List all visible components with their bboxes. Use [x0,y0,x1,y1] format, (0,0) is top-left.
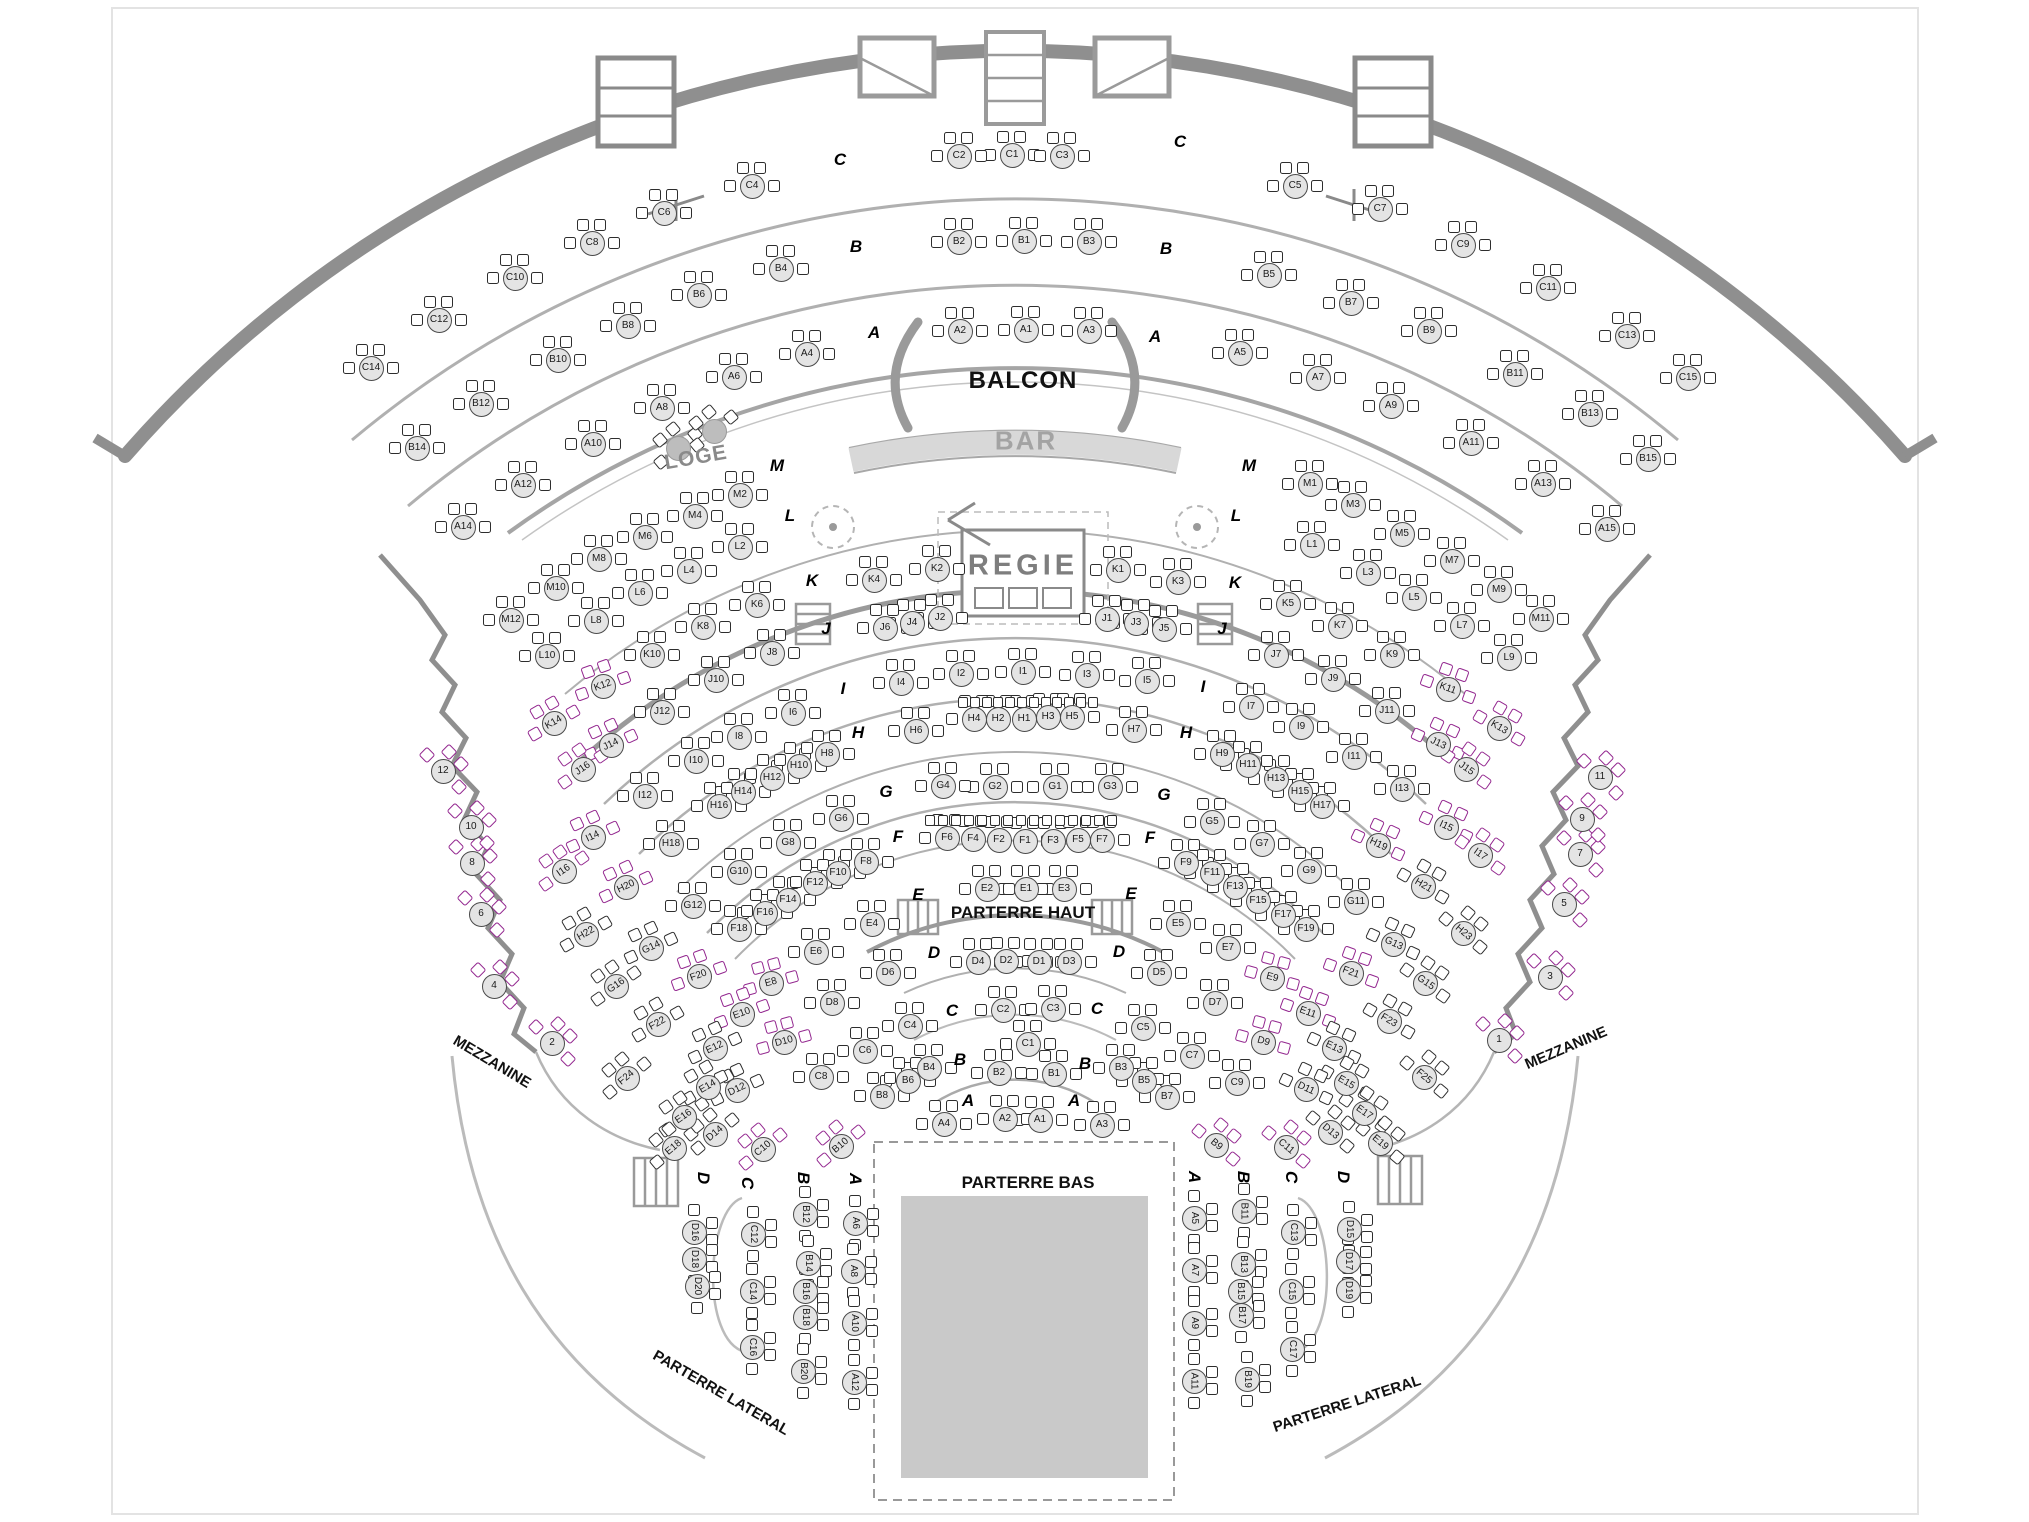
table-row-b-B6[interactable]: B6 [896,1069,921,1094]
table-row-j-J4[interactable]: J4 [900,611,925,636]
table-row-f-F11[interactable]: F11 [1200,861,1225,886]
table-row-a-A7[interactable]: A7 [1182,1258,1207,1283]
table-row-j-J16[interactable]: J16 [571,757,596,782]
table-row-h-H23[interactable]: H23 [1451,921,1476,946]
table-row-b-B14[interactable]: B14 [796,1251,821,1276]
table-row-g-G7[interactable]: G7 [1250,832,1275,857]
table-row-e-E11[interactable]: E11 [1296,1001,1321,1026]
table-mezz-left-10[interactable]: 10 [459,815,484,840]
table-row-i-I7[interactable]: I7 [1239,695,1264,720]
table-row-f-F19[interactable]: F19 [1294,917,1319,942]
table-mezz-left-12[interactable]: 12 [431,759,456,784]
table-row-i-I3[interactable]: I3 [1075,663,1100,688]
table-row-a-A10[interactable]: A10 [842,1311,867,1336]
table-row-d-D8[interactable]: D8 [820,991,845,1016]
table-row-k-K3[interactable]: K3 [1166,570,1191,595]
table-row-c-C6[interactable]: C6 [853,1039,878,1064]
table-row-h-H3[interactable]: H3 [1036,705,1061,730]
table-row-f-F10[interactable]: F10 [826,861,851,886]
table-balcon-c-C2[interactable]: C2 [947,144,972,169]
table-balcon-a-A10[interactable]: A10 [581,432,606,457]
table-balcon-b-B4[interactable]: B4 [769,257,794,282]
table-row-i-I15[interactable]: I15 [1434,815,1459,840]
table-row-l-L9[interactable]: L9 [1497,646,1522,671]
table-row-i-I12[interactable]: I12 [633,784,658,809]
table-row-f-F5[interactable]: F5 [1066,828,1091,853]
table-balcon-c-C15[interactable]: C15 [1676,366,1701,391]
table-row-b-B11[interactable]: B11 [1232,1199,1257,1224]
table-row-d-D6[interactable]: D6 [876,961,901,986]
table-row-b-B9[interactable]: B9 [1204,1133,1229,1158]
table-row-m-M10[interactable]: M10 [544,576,569,601]
table-row-d-D14[interactable]: D14 [703,1122,728,1147]
table-row-e-E18[interactable]: E18 [662,1136,687,1161]
table-row-b-B3[interactable]: B3 [1109,1056,1134,1081]
table-row-c-C4[interactable]: C4 [898,1014,923,1039]
chair [750,889,762,901]
table-row-b-B17[interactable]: B17 [1229,1303,1254,1328]
table-row-g-G8[interactable]: G8 [776,831,801,856]
table-row-k-K4[interactable]: K4 [862,568,887,593]
table-balcon-b-B14[interactable]: B14 [405,436,430,461]
chair [1336,279,1348,291]
door-pivot-left [829,523,837,531]
table-balcon-a-A5[interactable]: A5 [1228,341,1253,366]
table-row-a-A3[interactable]: A3 [1090,1113,1115,1138]
table-row-d-D15[interactable]: D15 [1337,1217,1362,1242]
table-row-h-H20[interactable]: H20 [614,875,639,900]
table-mezz-right-3[interactable]: 3 [1538,965,1563,990]
table-row-j-J3[interactable]: J3 [1124,611,1149,636]
table-row-f-F15[interactable]: F15 [1246,889,1271,914]
table-row-i-I9[interactable]: I9 [1289,715,1314,740]
table-row-k-K11[interactable]: K11 [1436,677,1461,702]
table-balcon-c-C12[interactable]: C12 [427,308,452,333]
table-row-d-D19[interactable]: D19 [1336,1278,1361,1303]
table-row-k-K5[interactable]: K5 [1276,592,1301,617]
table-balcon-b-B1[interactable]: B1 [1012,229,1037,254]
table-row-a-A8[interactable]: A8 [841,1259,866,1284]
table-balcon-c-C14[interactable]: C14 [359,356,384,381]
table-row-d-D17[interactable]: D17 [1336,1249,1361,1274]
table-row-e-E4[interactable]: E4 [860,912,885,937]
table-row-e-E6[interactable]: E6 [804,940,829,965]
table-row-e-E7[interactable]: E7 [1216,936,1241,961]
table-row-l-L2[interactable]: L2 [728,535,753,560]
row-label-G: G [1157,785,1170,805]
table-balcon-c-C1[interactable]: C1 [1000,143,1025,168]
table-balcon-a-A4[interactable]: A4 [795,342,820,367]
table-row-g-G16[interactable]: G16 [604,974,629,999]
table-row-l-L4[interactable]: L4 [677,559,702,584]
table-row-e-E5[interactable]: E5 [1166,912,1191,937]
table-row-k-K14[interactable]: K14 [542,711,567,736]
table-label: B9 [1423,326,1435,336]
table-row-d-D20[interactable]: D20 [685,1274,710,1299]
table-row-l-L1[interactable]: L1 [1300,533,1325,558]
table-row-f-F1[interactable]: F1 [1013,829,1038,854]
table-row-m-M11[interactable]: M11 [1529,607,1554,632]
table-row-e-E16[interactable]: E16 [672,1105,697,1130]
table-balcon-a-A6[interactable]: A6 [722,365,747,390]
table-row-k-K9[interactable]: K9 [1380,643,1405,668]
table-row-a-A4[interactable]: A4 [932,1112,957,1137]
table-row-j-J8[interactable]: J8 [760,641,785,666]
table-row-h-H16[interactable]: H16 [707,794,732,819]
table-row-h-H21[interactable]: H21 [1411,874,1436,899]
table-row-i-I13[interactable]: I13 [1390,777,1415,802]
table-row-d-D10[interactable]: D10 [772,1030,797,1055]
table-row-h-H15[interactable]: H15 [1288,780,1313,805]
table-row-l-L10[interactable]: L10 [535,644,560,669]
chair [929,1100,941,1112]
table-row-a-A12[interactable]: A12 [842,1370,867,1395]
table-row-f-F13[interactable]: F13 [1223,875,1248,900]
table-row-g-G11[interactable]: G11 [1344,890,1369,915]
table-row-l-L6[interactable]: L6 [628,581,653,606]
table-row-h-H5[interactable]: H5 [1060,705,1085,730]
table-balcon-a-A11[interactable]: A11 [1459,431,1484,456]
table-balcon-b-B9[interactable]: B9 [1417,319,1442,344]
table-row-h-H6[interactable]: H6 [904,719,929,744]
table-row-h-H17[interactable]: H17 [1310,794,1335,819]
table-balcon-a-A13[interactable]: A13 [1531,472,1556,497]
table-balcon-c-C4[interactable]: C4 [740,174,765,199]
table-row-c-C13[interactable]: C13 [1281,1220,1306,1245]
table-row-m-M8[interactable]: M8 [587,547,612,572]
table-row-m-M7[interactable]: M7 [1440,549,1465,574]
table-row-c-C8[interactable]: C8 [809,1065,834,1090]
table-balcon-c-C11[interactable]: C11 [1536,276,1561,301]
table-row-k-K6[interactable]: K6 [745,593,770,618]
table-row-e-E15[interactable]: E15 [1334,1071,1359,1096]
table-balcon-a-A9[interactable]: A9 [1379,394,1404,419]
table-row-m-M5[interactable]: M5 [1390,522,1415,547]
table-row-l-L7[interactable]: L7 [1450,614,1475,639]
table-row-c-C10[interactable]: C10 [751,1137,776,1162]
table-mezz-left-8[interactable]: 8 [460,851,485,876]
table-mezz-right-9[interactable]: 9 [1570,807,1595,832]
table-row-h-H19[interactable]: H19 [1366,833,1391,858]
table-row-b-B10[interactable]: B10 [829,1134,854,1159]
table-balcon-b-B10[interactable]: B10 [546,348,571,373]
chair [976,325,988,337]
table-balcon-b-B7[interactable]: B7 [1339,291,1364,316]
table-row-k-K1[interactable]: K1 [1106,558,1131,583]
table-row-f-F7[interactable]: F7 [1090,828,1115,853]
table-row-a-A2[interactable]: A2 [993,1107,1018,1132]
table-row-i-I11[interactable]: I11 [1342,745,1367,770]
row-label-A: A [1068,1091,1080,1111]
table-row-k-K7[interactable]: K7 [1328,614,1353,639]
table-row-h-H9[interactable]: H9 [1210,742,1235,767]
table-row-j-J13[interactable]: J13 [1426,732,1451,757]
table-row-g-G13[interactable]: G13 [1381,932,1406,957]
table-row-e-E10[interactable]: E10 [730,1002,755,1027]
table-row-c-C15[interactable]: C15 [1279,1279,1304,1304]
table-row-h-H13[interactable]: H13 [1264,767,1289,792]
table-row-b-B15[interactable]: B15 [1228,1279,1253,1304]
table-row-g-G5[interactable]: G5 [1200,810,1225,835]
table-row-k-K8[interactable]: K8 [691,615,716,640]
table-row-a-A11[interactable]: A11 [1182,1369,1207,1394]
table-balcon-a-A1[interactable]: A1 [1014,318,1039,343]
table-row-i-I8[interactable]: I8 [727,725,752,750]
table-row-e-E19[interactable]: E19 [1368,1131,1393,1156]
table-row-f-F23[interactable]: F23 [1377,1009,1402,1034]
table-row-d-D12[interactable]: D12 [725,1078,750,1103]
table-balcon-b-B12[interactable]: B12 [469,392,494,417]
table-row-f-F3[interactable]: F3 [1041,829,1066,854]
table-row-e-E8[interactable]: E8 [759,971,784,996]
table-row-m-M3[interactable]: M3 [1341,493,1366,518]
table-row-j-J2[interactable]: J2 [928,606,953,631]
table-row-g-G15[interactable]: G15 [1413,971,1438,996]
table-row-j-J10[interactable]: J10 [704,668,729,693]
table-row-a-A5[interactable]: A5 [1182,1206,1207,1231]
table-row-m-M4[interactable]: M4 [683,504,708,529]
table-row-f-F17[interactable]: F17 [1271,903,1296,928]
table-row-h-H22[interactable]: H22 [574,922,599,947]
table-row-d-D1[interactable]: D1 [1027,950,1052,975]
table-balcon-c-C13[interactable]: C13 [1615,324,1640,349]
table-row-g-G10[interactable]: G10 [727,860,752,885]
table-row-c-C7[interactable]: C7 [1180,1044,1205,1069]
table-row-g-G6[interactable]: G6 [829,807,854,832]
table-balcon-b-B5[interactable]: B5 [1257,263,1282,288]
table-balcon-b-B2[interactable]: B2 [947,230,972,255]
table-row-k-K2[interactable]: K2 [925,557,950,582]
table-row-j-J6[interactable]: J6 [873,616,898,641]
table-row-b-B8[interactable]: B8 [870,1084,895,1109]
table-row-j-J9[interactable]: J9 [1321,667,1346,692]
table-row-e-E12[interactable]: E12 [703,1036,728,1061]
chair [674,547,686,559]
table-label: H14 [734,787,752,797]
table-row-i-I6[interactable]: I6 [781,701,806,726]
chair [647,384,659,396]
table-row-e-E2[interactable]: E2 [975,877,1000,902]
table-row-f-F21[interactable]: F21 [1339,961,1364,986]
table-balcon-a-A8[interactable]: A8 [650,396,675,421]
table-label: M5 [1395,529,1409,539]
table-balcon-c-C9[interactable]: C9 [1451,233,1476,258]
row-label-C: C [834,150,846,170]
table-mezz-left-2[interactable]: 2 [540,1031,565,1056]
table-row-d-D5[interactable]: D5 [1147,961,1172,986]
table-row-a-A6[interactable]: A6 [843,1211,868,1236]
table-mezz-right-1[interactable]: 1 [1487,1028,1512,1053]
row-label-B: B [1160,239,1172,259]
table-row-c-C2[interactable]: C2 [991,998,1016,1023]
table-row-f-F18[interactable]: F18 [727,917,752,942]
table-row-g-G2[interactable]: G2 [983,775,1008,800]
table-balcon-a-A12[interactable]: A12 [511,473,536,498]
table-row-e-E13[interactable]: E13 [1322,1036,1347,1061]
table-row-f-F2[interactable]: F2 [987,828,1012,853]
table-row-j-J5[interactable]: J5 [1152,617,1177,642]
table-row-h-H18[interactable]: H18 [659,832,684,857]
table-row-a-A9[interactable]: A9 [1182,1311,1207,1336]
table-row-j-J11[interactable]: J11 [1375,699,1400,724]
table-row-c-C16[interactable]: C16 [740,1335,765,1360]
table-balcon-c-C6[interactable]: C6 [652,201,677,226]
table-balcon-c-C10[interactable]: C10 [503,266,528,291]
table-row-f-F25[interactable]: F25 [1412,1065,1437,1090]
table-balcon-c-C7[interactable]: C7 [1368,197,1393,222]
table-row-i-I17[interactable]: I17 [1468,843,1493,868]
table-row-h-H2[interactable]: H2 [986,707,1011,732]
table-row-e-E14[interactable]: E14 [696,1075,721,1100]
table-row-d-D18[interactable]: D18 [682,1247,707,1272]
table-row-f-F6[interactable]: F6 [935,826,960,851]
table-row-h-H11[interactable]: H11 [1236,753,1261,778]
table-row-i-I10[interactable]: I10 [684,749,709,774]
table-row-l-L5[interactable]: L5 [1402,586,1427,611]
table-balcon-a-A2[interactable]: A2 [948,319,973,344]
chair [917,677,929,689]
table-row-c-C17[interactable]: C17 [1280,1337,1305,1362]
table-balcon-b-B8[interactable]: B8 [616,314,641,339]
table-balcon-a-A7[interactable]: A7 [1306,366,1331,391]
table-row-g-G12[interactable]: G12 [681,894,706,919]
table-row-j-J12[interactable]: J12 [650,700,675,725]
table-row-d-D7[interactable]: D7 [1203,991,1228,1016]
table-row-i-I14[interactable]: I14 [581,825,606,850]
table-row-e-E9[interactable]: E9 [1260,966,1285,991]
table-row-g-G9[interactable]: G9 [1297,859,1322,884]
table-row-f-F14[interactable]: F14 [776,888,801,913]
table-row-c-C1[interactable]: C1 [1016,1032,1041,1057]
chair [1326,478,1338,490]
table-row-b-B2[interactable]: B2 [987,1061,1012,1086]
table-balcon-b-B11[interactable]: B11 [1503,362,1528,387]
table-balcon-c-C5[interactable]: C5 [1283,174,1308,199]
table-row-k-K12[interactable]: K12 [591,674,616,699]
table-row-m-M9[interactable]: M9 [1487,578,1512,603]
table-row-f-F22[interactable]: F22 [646,1012,671,1037]
table-row-h-H10[interactable]: H10 [787,754,812,779]
table-row-i-I5[interactable]: I5 [1135,669,1160,694]
table-row-b-B18[interactable]: B18 [793,1305,818,1330]
table-balcon-b-B3[interactable]: B3 [1077,230,1102,255]
table-row-m-M2[interactable]: M2 [728,483,753,508]
table-row-g-G1[interactable]: G1 [1043,775,1068,800]
table-row-e-E1[interactable]: E1 [1014,877,1039,902]
table-mezz-right-5[interactable]: 5 [1552,892,1577,917]
table-row-d-D13[interactable]: D13 [1318,1120,1343,1145]
table-row-c-C5[interactable]: C5 [1131,1016,1156,1041]
table-row-b-B5[interactable]: B5 [1132,1069,1157,1094]
table-row-d-D16[interactable]: D16 [682,1220,707,1245]
table-row-h-H1[interactable]: H1 [1012,707,1037,732]
table-row-d-D9[interactable]: D9 [1251,1030,1276,1055]
table-balcon-b-B6[interactable]: B6 [687,283,712,308]
table-row-k-K10[interactable]: K10 [640,643,665,668]
table-row-d-D4[interactable]: D4 [966,950,991,975]
table-mezz-left-4[interactable]: 4 [482,974,507,999]
table-row-f-F4[interactable]: F4 [961,827,986,852]
chair [595,420,607,432]
table-row-i-I1[interactable]: I1 [1011,660,1036,685]
chair [1011,865,1023,877]
table-row-a-A1[interactable]: A1 [1028,1108,1053,1133]
table-row-d-D3[interactable]: D3 [1057,950,1082,975]
table-row-g-G4[interactable]: G4 [931,774,956,799]
table-row-c-C14[interactable]: C14 [740,1279,765,1304]
chair [1095,763,1107,775]
table-mezz-right-7[interactable]: 7 [1568,842,1593,867]
table-row-c-C12[interactable]: C12 [741,1222,766,1247]
table-balcon-a-A14[interactable]: A14 [451,515,476,540]
table-row-j-J1[interactable]: J1 [1095,607,1120,632]
table-row-b-B12[interactable]: B12 [793,1202,818,1227]
table-row-h-H14[interactable]: H14 [731,780,756,805]
table-row-c-C3[interactable]: C3 [1041,997,1066,1022]
table-row-k-K13[interactable]: K13 [1487,716,1512,741]
table-row-b-B13[interactable]: B13 [1231,1252,1256,1277]
table-row-b-B16[interactable]: B16 [793,1279,818,1304]
table-row-c-C9[interactable]: C9 [1225,1071,1250,1096]
table-balcon-c-C3[interactable]: C3 [1050,144,1075,169]
table-row-i-I4[interactable]: I4 [889,671,914,696]
table-row-d-D11[interactable]: D11 [1294,1077,1319,1102]
table-row-e-E17[interactable]: E17 [1352,1101,1377,1126]
table-row-b-B1[interactable]: B1 [1042,1062,1067,1087]
table-balcon-a-A15[interactable]: A15 [1595,517,1620,542]
table-mezz-left-6[interactable]: 6 [469,902,494,927]
table-mezz-right-11[interactable]: 11 [1588,765,1613,790]
table-row-f-F20[interactable]: F20 [687,964,712,989]
table-row-f-F8[interactable]: F8 [854,850,879,875]
table-row-l-L8[interactable]: L8 [584,609,609,634]
table-row-h-H8[interactable]: H8 [815,742,840,767]
table-row-d-D2[interactable]: D2 [994,949,1019,974]
chair [942,594,954,606]
table-balcon-b-B15[interactable]: B15 [1636,447,1661,472]
table-row-j-J15[interactable]: J15 [1454,757,1479,782]
table-row-i-I2[interactable]: I2 [949,662,974,687]
table-row-j-J14[interactable]: J14 [599,733,624,758]
table-row-b-B20[interactable]: B20 [791,1359,816,1384]
table-row-f-F12[interactable]: F12 [803,871,828,896]
table-row-m-M6[interactable]: M6 [633,525,658,550]
table-row-h-H4[interactable]: H4 [962,707,987,732]
chair [661,565,673,577]
table-row-m-M12[interactable]: M12 [499,608,524,633]
table-row-g-G14[interactable]: G14 [639,936,664,961]
table-row-b-B19[interactable]: B19 [1235,1367,1260,1392]
table-row-m-M1[interactable]: M1 [1298,472,1323,497]
table-row-e-E3[interactable]: E3 [1052,877,1077,902]
table-row-i-I16[interactable]: I16 [552,859,577,884]
table-row-f-F24[interactable]: F24 [615,1066,640,1091]
table-row-g-G3[interactable]: G3 [1098,775,1123,800]
table-row-j-J7[interactable]: J7 [1264,643,1289,668]
table-row-f-F9[interactable]: F9 [1174,851,1199,876]
table-row-f-F16[interactable]: F16 [753,901,778,926]
table-label: G9 [1302,866,1315,876]
table-row-c-C11[interactable]: C11 [1274,1135,1299,1160]
table-balcon-a-A3[interactable]: A3 [1077,319,1102,344]
table-loge-2[interactable] [702,419,727,444]
table-row-h-H7[interactable]: H7 [1122,718,1147,743]
table-balcon-c-C8[interactable]: C8 [580,231,605,256]
table-balcon-b-B13[interactable]: B13 [1578,402,1603,427]
table-row-b-B7[interactable]: B7 [1155,1085,1180,1110]
table-row-l-L3[interactable]: L3 [1356,561,1381,586]
table-row-h-H12[interactable]: H12 [760,766,785,791]
